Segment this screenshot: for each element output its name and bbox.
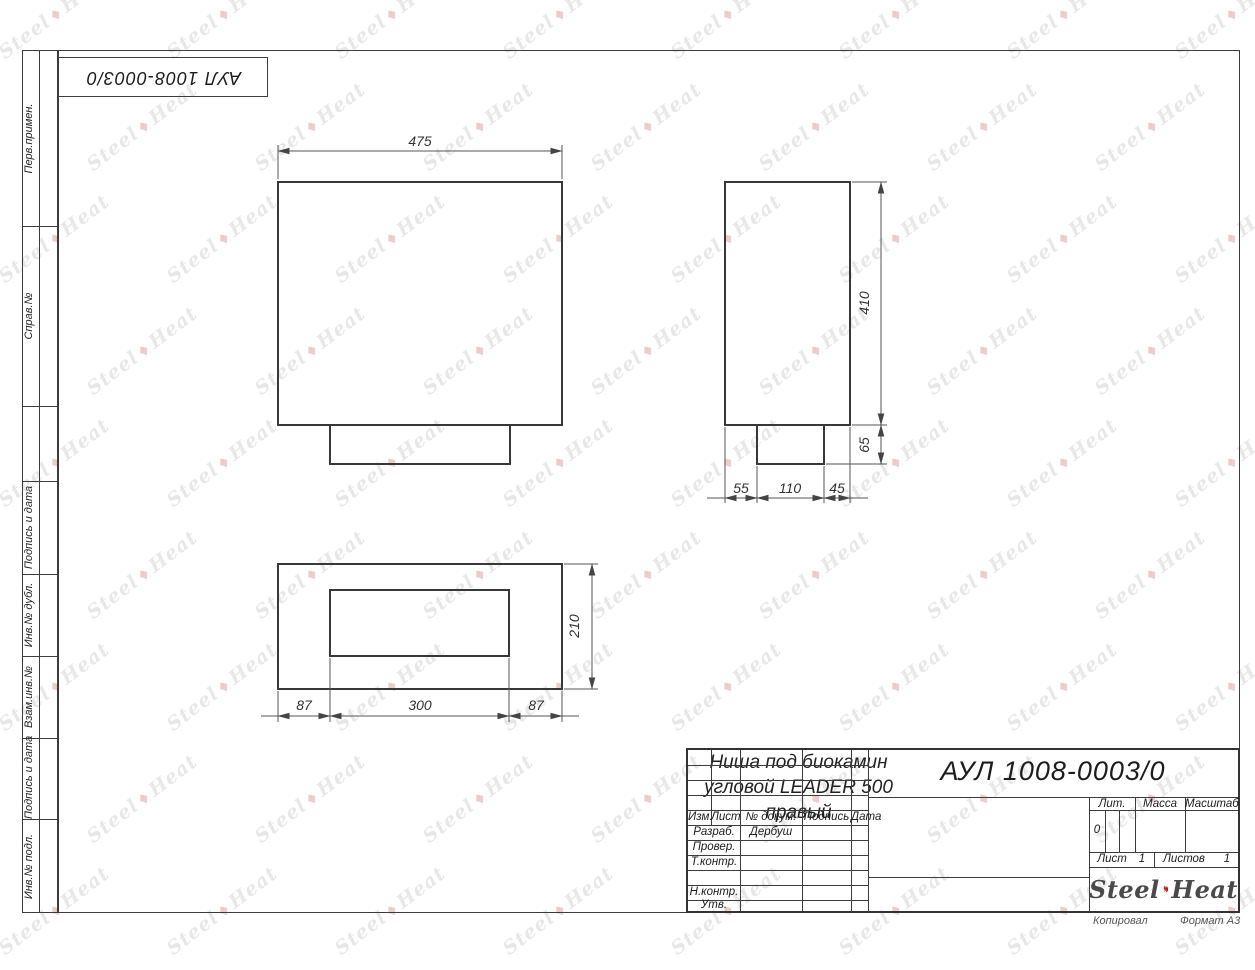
grid-line	[688, 795, 868, 796]
title-block-doc-number: АУЛ 1008-0003/0	[868, 756, 1238, 787]
dim-lines-front-width	[278, 145, 562, 179]
col-header-doc: № докум.	[740, 811, 802, 823]
grid-line	[868, 877, 1089, 878]
margin-label-vzam-inv: Взам.инв.№	[23, 656, 39, 738]
grid-line	[1105, 810, 1106, 852]
margin-label-sprav-no: Справ.№	[23, 226, 39, 406]
sheets-label: Листов	[1154, 853, 1214, 865]
sheet-label: Лист	[1090, 853, 1134, 865]
lit-value: 0	[1089, 824, 1105, 836]
row-razrab-value: Дербуш	[740, 826, 802, 838]
grid-line	[851, 750, 852, 911]
rotated-doc-number-box: АУЛ 1008-0003/0	[58, 57, 268, 97]
left-margin-strip: Перв.примен. Справ.№ Подпись и дата Инв.…	[22, 50, 58, 913]
footer-copied-label: Копировал	[1093, 915, 1148, 927]
col-header-date: Дата	[851, 811, 868, 823]
margin-label-podpis-data-2: Подпись и дата	[23, 738, 39, 819]
plan-view-opening	[330, 590, 509, 656]
grid-line	[688, 765, 868, 766]
dim-lines-side-height	[826, 182, 887, 464]
margin-label-podpis-data-1: Подпись и дата	[23, 481, 39, 574]
row-tkontr-label: Т.контр.	[688, 856, 740, 868]
row-nkontr-label: Н.контр.	[688, 886, 740, 898]
mass-header: Масса	[1135, 798, 1185, 810]
dim-side-bottom-110: 110	[779, 480, 802, 496]
side-view-foot	[757, 425, 824, 464]
footer-format-label: Формат А3	[1180, 915, 1240, 927]
steelheat-logo: Steel Heat	[1089, 867, 1238, 911]
dim-side-bottom-55: 55	[733, 480, 749, 496]
sheets-value: 1	[1218, 853, 1236, 865]
grid-line	[1119, 810, 1120, 852]
dim-plan-bottom-87-right: 87	[528, 697, 545, 713]
side-view-body	[725, 182, 850, 425]
margin-label-inv-podl: Инв.№ подл.	[23, 819, 39, 914]
grid-line	[1089, 810, 1238, 811]
col-header-sign: Подпись	[802, 811, 851, 823]
dim-plan-height: 210	[566, 614, 582, 639]
drawing-sheet: Steel♦HeatSteel♦HeatSteel♦HeatSteel♦Heat…	[0, 0, 1255, 970]
dim-side-bottom-45: 45	[829, 480, 845, 496]
col-header-list: Лист	[711, 811, 740, 823]
grid-line	[23, 406, 57, 407]
front-view-body	[278, 182, 562, 425]
dim-side-foot-height: 65	[856, 437, 872, 453]
row-razrab-label: Разраб.	[688, 826, 740, 838]
col-header-izm: Изм.	[688, 811, 711, 823]
row-utv-label: Утв.	[688, 899, 740, 911]
scale-header: Масштаб	[1185, 798, 1238, 810]
sheet-value: 1	[1132, 853, 1152, 865]
plan-view-outline	[278, 564, 562, 689]
title-block: АУЛ 1008-0003/0 Ниша под биокамин углово…	[686, 748, 1240, 913]
dim-plan-bottom-87-left: 87	[296, 697, 313, 713]
grid-line	[802, 750, 803, 911]
dim-side-height: 410	[856, 291, 872, 315]
flame-icon	[1163, 875, 1169, 903]
front-view-foot	[330, 425, 510, 464]
row-prover-label: Провер.	[688, 841, 740, 853]
lit-header: Лит.	[1089, 798, 1135, 810]
rotated-doc-number: АУЛ 1008-0003/0	[86, 67, 241, 88]
margin-label-inv-dubl: Инв.№ дубл.	[23, 574, 39, 656]
grid-line	[688, 780, 868, 781]
grid-line	[688, 870, 868, 871]
logo-steel-text: Steel	[1089, 875, 1160, 904]
dim-front-width: 475	[408, 133, 432, 149]
dim-plan-bottom-300: 300	[408, 697, 432, 713]
logo-heat-text: Heat	[1171, 875, 1238, 904]
margin-label-perv-primen: Перв.примен.	[23, 51, 39, 226]
